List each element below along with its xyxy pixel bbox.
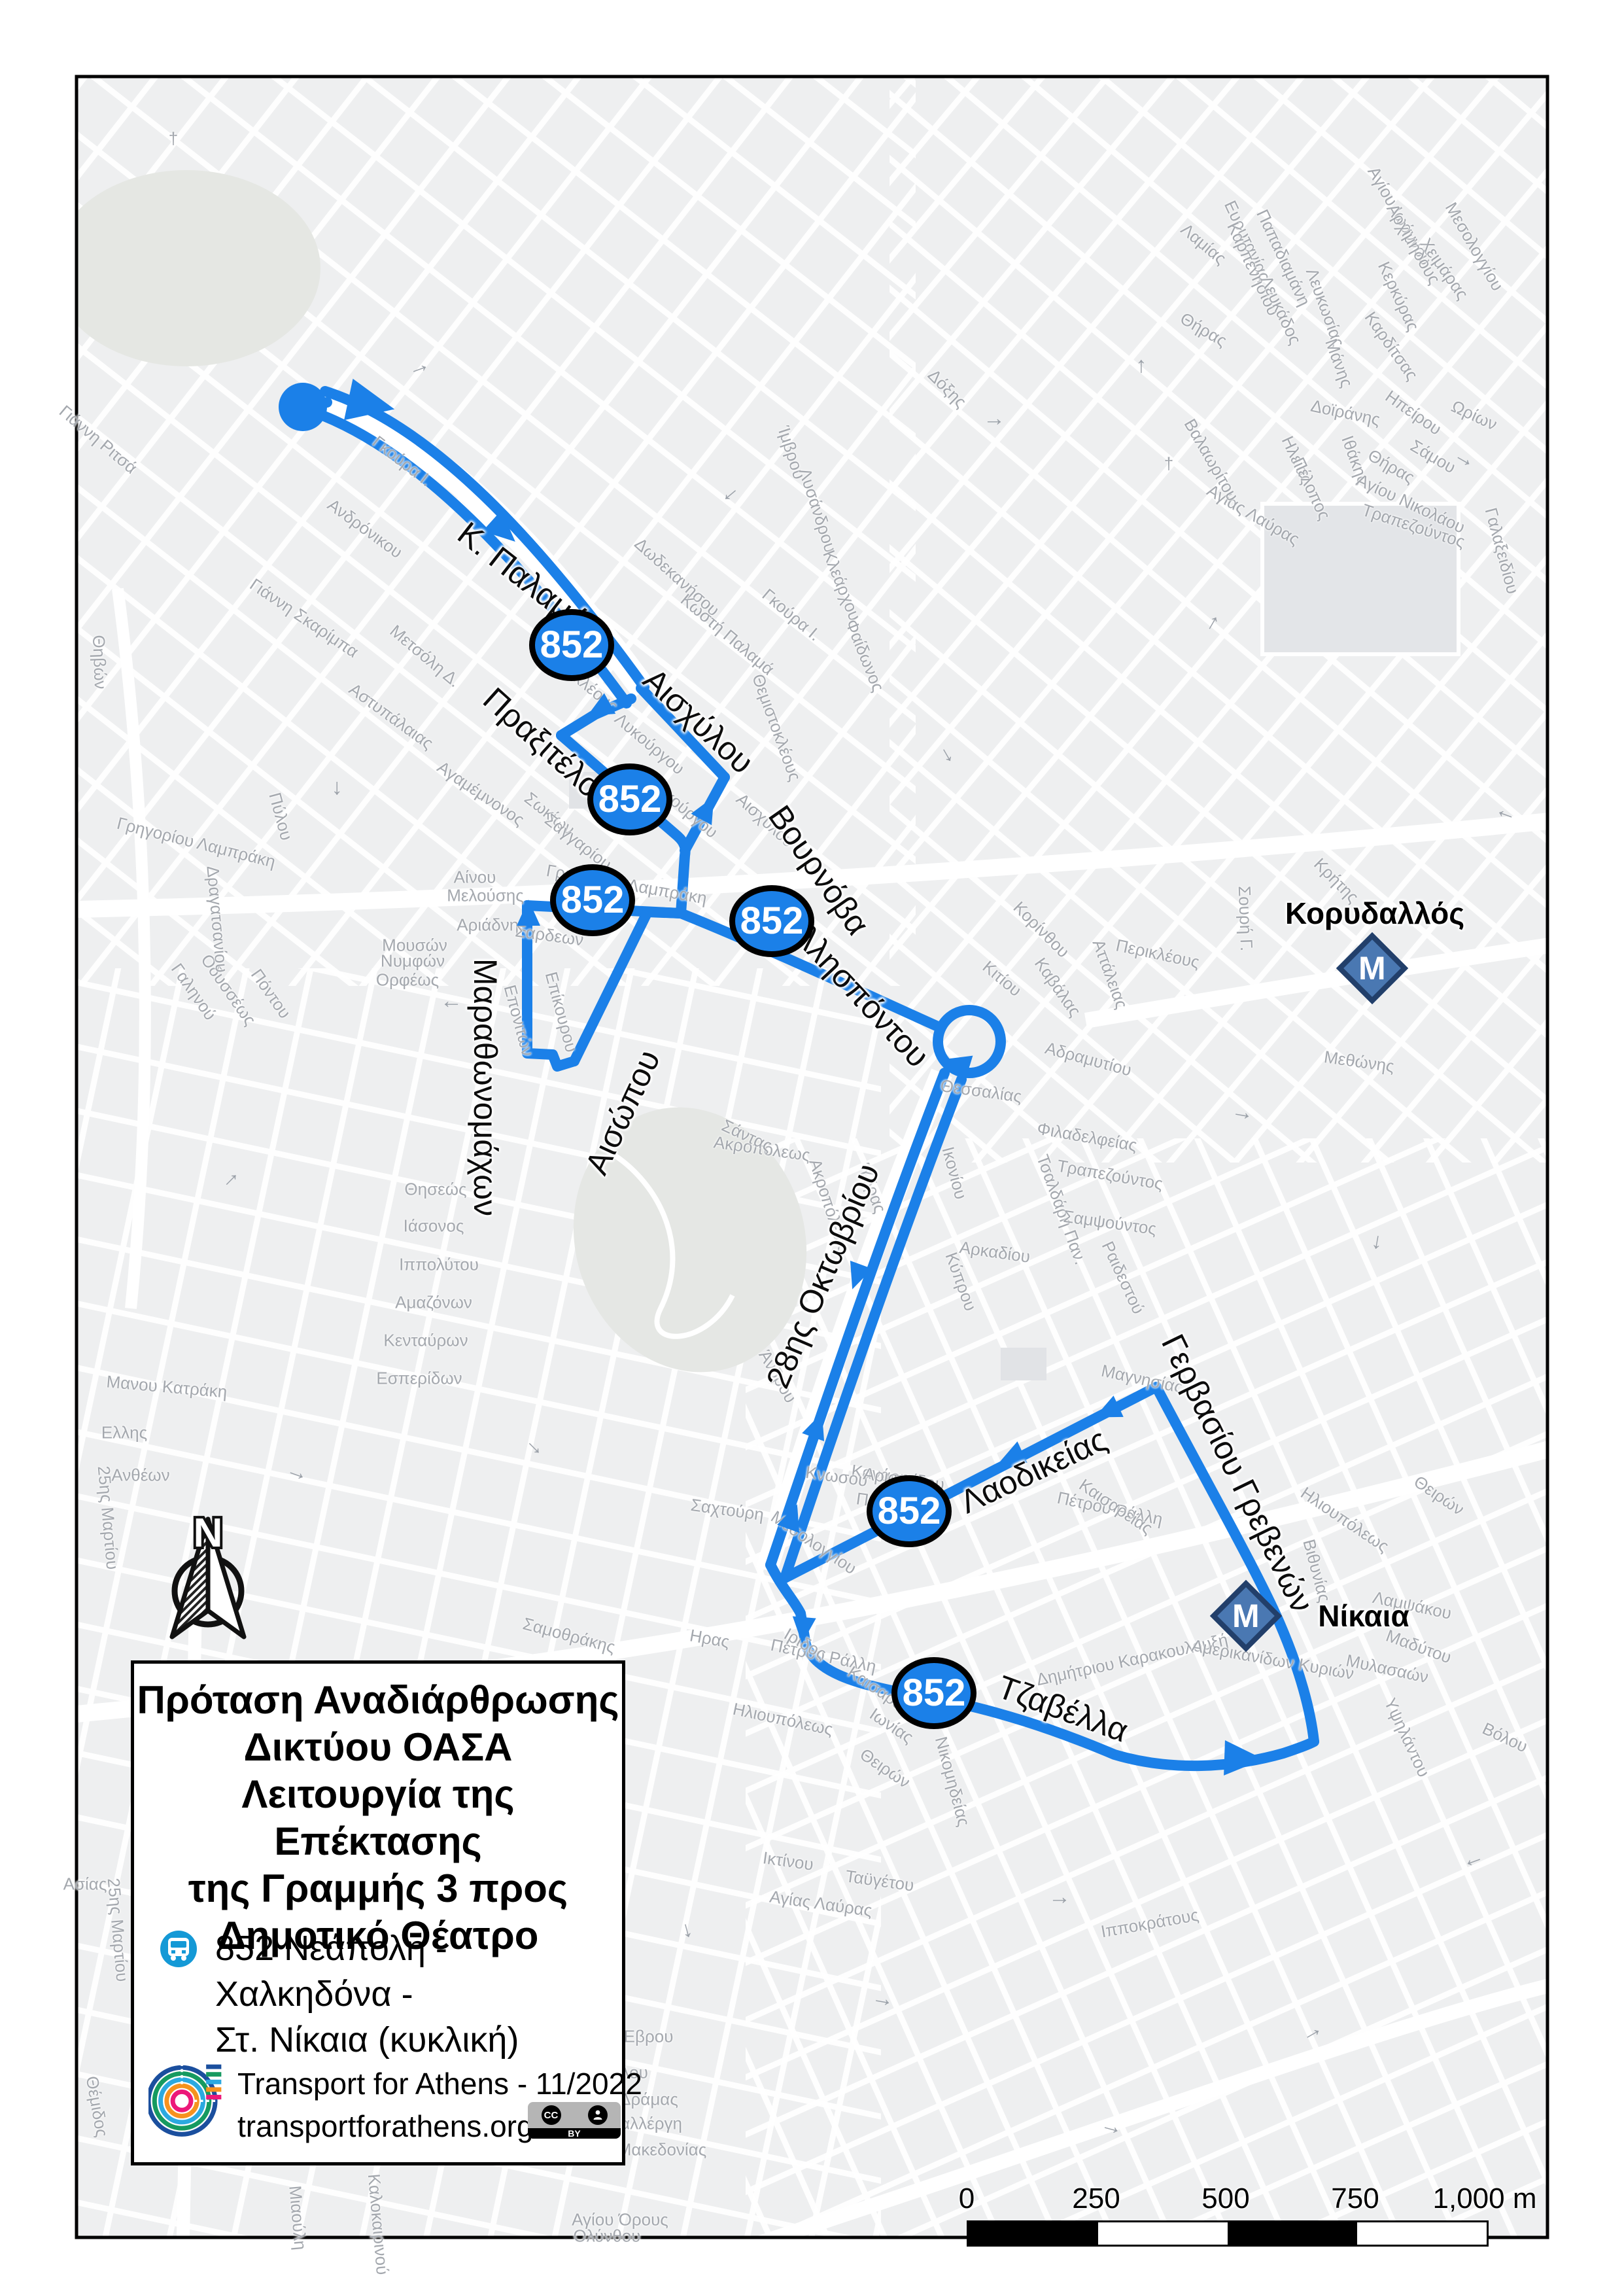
street-label: Εσπερίδων <box>376 1369 462 1389</box>
metro-letter: M <box>1358 952 1386 985</box>
scale-tick: 500 <box>1201 2182 1249 2215</box>
street-label: Θησεώς <box>404 1180 466 1200</box>
route-badge: 852 <box>867 1475 952 1547</box>
metro-letter: M <box>1232 1600 1260 1632</box>
scale-bar: 0 250 500 750 1,000 m <box>967 2182 1485 2254</box>
oneway-arrow-icon: → <box>1230 1098 1256 1127</box>
transport-for-athens-logo <box>148 2061 224 2137</box>
title-line: Πρόταση Αναδιάρθρωσης <box>134 1677 622 1724</box>
street-label: Σουρή Γ. <box>1234 886 1256 952</box>
route-name-line: Στ. Νίκαια (κυκλική) <box>215 2017 602 2063</box>
route-badge: 852 <box>891 1657 976 1729</box>
metro-station-label: Νίκαια <box>1318 1598 1409 1634</box>
scale-segment <box>969 2222 1098 2245</box>
oneway-arrow-icon: → <box>983 406 1005 432</box>
scale-segment <box>1098 2222 1228 2245</box>
title-line: Λειτουργία της Επέκτασης <box>134 1771 622 1865</box>
oneway-arrow-icon: → <box>1126 355 1151 377</box>
oneway-arrow-icon: → <box>870 1984 896 2013</box>
attribution: Transport for Athens - 11/2022 transport… <box>148 2061 614 2146</box>
oneway-arrow-icon: → <box>1366 1230 1394 1256</box>
route-direction-arrow <box>1224 1740 1264 1777</box>
street-label: † <box>1164 454 1173 474</box>
scale-tick: 250 <box>1072 2182 1120 2215</box>
oneway-arrow-icon: → <box>1048 1885 1071 1910</box>
street-label: Κενταύρων <box>383 1331 468 1351</box>
street-label: Ολύνθου <box>574 2226 641 2247</box>
scale-segment <box>1228 2222 1357 2245</box>
scale-segment <box>1357 2222 1487 2245</box>
scale-tick: 750 <box>1331 2182 1379 2215</box>
legend-route-name: 852 Νεάπολη - Χαλκηδόνα - Στ. Νίκαια (κυ… <box>215 1925 602 2063</box>
route-terminus-dot <box>279 383 327 431</box>
street-label-major: Μαραθωνομάχων <box>466 958 504 1216</box>
street-label: Ανθέων <box>111 1465 169 1486</box>
bus-icon <box>160 1931 197 1967</box>
street-label: Ιππολύτου <box>399 1255 479 1275</box>
street-label: Μελούσης <box>447 886 524 906</box>
cc-by-badge: CC BY <box>528 2102 621 2139</box>
scale-bar-segments <box>967 2220 1489 2247</box>
street-label: Νυμφών <box>381 951 445 972</box>
route-direction-arrow <box>517 900 540 926</box>
map-page: N Γιάννη ΡιτσάΓκούρα Ι.ΑνδρόνικουΓιάννη … <box>0 0 1624 2295</box>
oneway-arrow-icon: → <box>440 995 462 1021</box>
route-badge: 852 <box>550 864 635 936</box>
route-badge: 852 <box>587 763 672 835</box>
street-label: Ελλης <box>101 1423 147 1443</box>
scale-tick: 0 <box>959 2182 975 2215</box>
cc-icon: CC <box>542 2105 561 2125</box>
oneway-arrow-icon: → <box>328 777 353 799</box>
scale-tick: 1,000 m <box>1433 2182 1537 2215</box>
cc-by-label: BY <box>528 2128 621 2139</box>
route-direction-arrow <box>790 1617 816 1645</box>
route-badge: 852 <box>529 609 614 681</box>
route-badge: 852 <box>729 885 814 957</box>
street-label: † <box>169 129 178 149</box>
map-title: Πρόταση Αναδιάρθρωσης Δικτύου ΟΑΣΑ Λειτο… <box>134 1677 622 1959</box>
legend-box: Πρόταση Αναδιάρθρωσης Δικτύου ΟΑΣΑ Λειτο… <box>131 1660 625 2165</box>
street-label: Ιάσονος <box>404 1216 464 1236</box>
attribution-line1: Transport for Athens - 11/2022 <box>237 2063 642 2105</box>
metro-station-label: Κορυδαλλός <box>1285 896 1464 931</box>
street-label: Έβρου <box>622 2027 674 2047</box>
route-name-line: 852 Νεάπολη - Χαλκηδόνα - <box>215 1925 602 2017</box>
compass-north-letter: N <box>194 1511 223 1556</box>
street-label: Ορφέως <box>376 970 439 990</box>
street-label: Αμαζόνων <box>395 1293 472 1313</box>
street-label: Αίνου <box>454 867 496 888</box>
title-line: της Γραμμής 3 προς <box>134 1865 622 1912</box>
legend-route-row: 852 Νεάπολη - Χαλκηδόνα - Στ. Νίκαια (κυ… <box>160 1925 602 2063</box>
street-label: Θηβών <box>88 635 111 690</box>
person-icon <box>588 2105 608 2125</box>
street-label: Ασίας <box>63 1874 107 1895</box>
title-line: Δικτύου ΟΑΣΑ <box>134 1724 622 1771</box>
